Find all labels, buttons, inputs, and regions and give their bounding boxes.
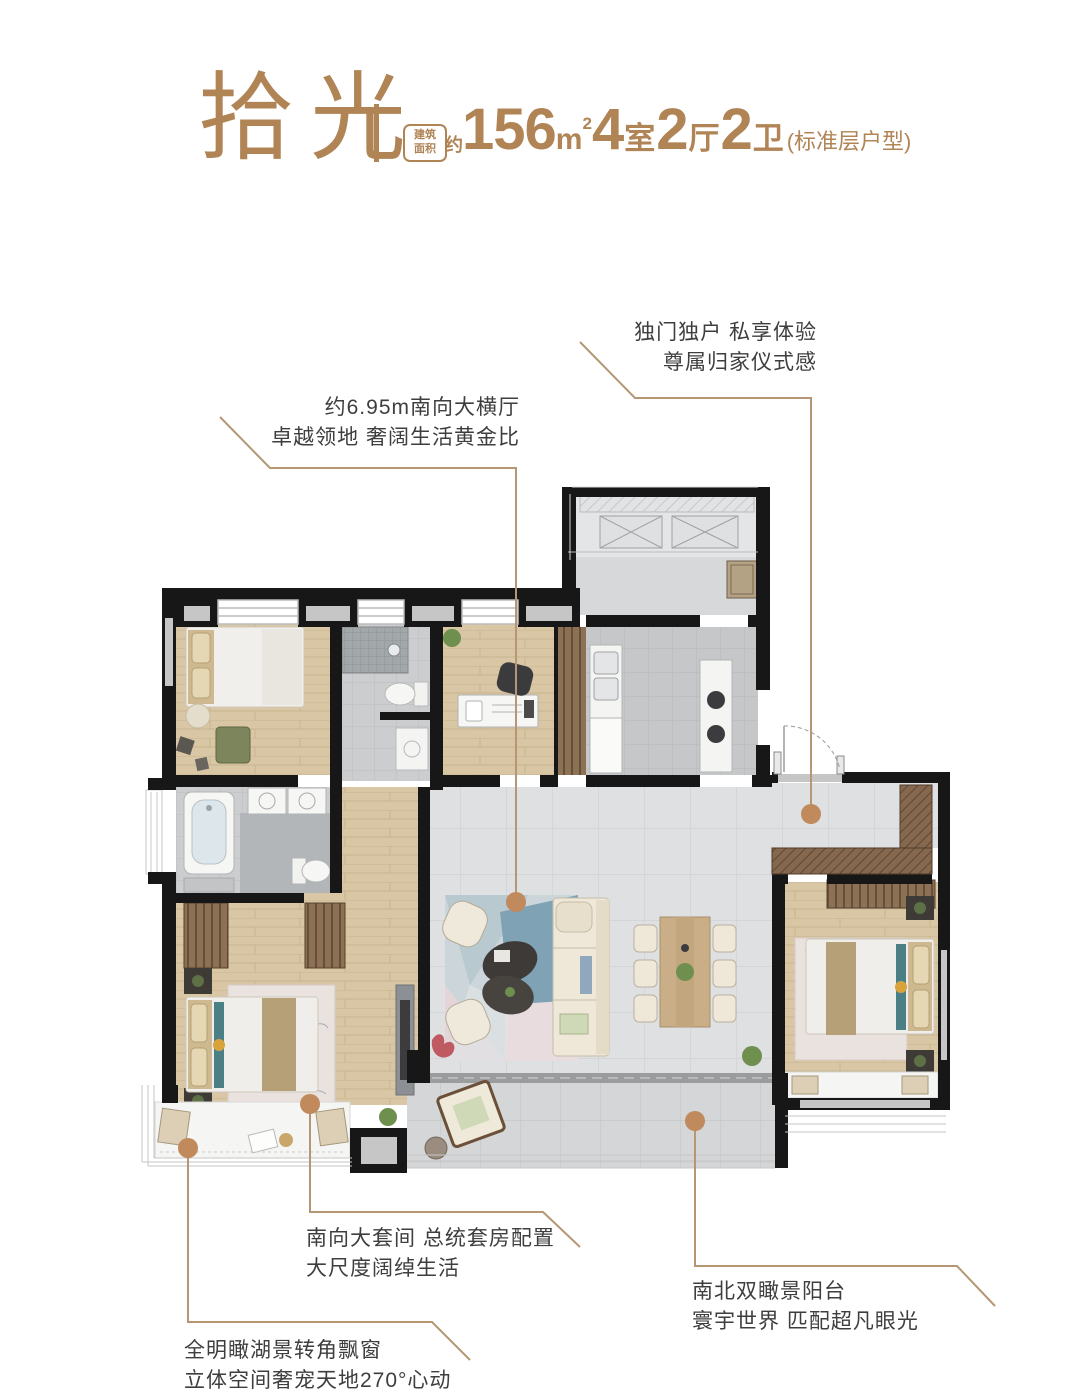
dot-entry	[801, 804, 821, 824]
stove-counter	[700, 660, 732, 772]
floorplan-page: { "colors":{"accent":"#b08455","line":"#…	[0, 0, 1068, 1400]
pantry-cabinet	[558, 627, 586, 775]
dot-bay-window	[178, 1138, 198, 1158]
burner	[707, 725, 725, 743]
toilet-tank	[414, 682, 428, 706]
bench	[216, 727, 250, 763]
vanity-sink	[248, 788, 286, 814]
callout-master-suite: 南向大套间 总统套房配置 大尺度阔绰生活	[306, 1224, 555, 1284]
bedroom-count: 4	[592, 96, 623, 163]
dot-living	[506, 892, 526, 912]
area-number: 156	[462, 96, 556, 163]
dot-master-suite	[300, 1094, 320, 1114]
callout-balcony: 南北双瞰景阳台 寰宇世界 匹配超凡眼光	[692, 1277, 919, 1337]
unit-spec: 156m24室2厅2卫(标准层户型)	[462, 96, 911, 163]
doormat	[727, 561, 757, 598]
floor-type-note: (标准层户型)	[787, 124, 912, 156]
bath-shelf	[184, 878, 234, 892]
plant	[379, 1108, 397, 1126]
callout-entry: 独门独户 私享体验 尊属归家仪式感	[634, 318, 817, 378]
wardrobe	[184, 903, 228, 968]
pillow	[316, 1108, 348, 1146]
bed-runner	[826, 942, 856, 1035]
suite-hallway-floor	[342, 787, 418, 901]
plant	[742, 1046, 762, 1066]
bathroom-count: 2	[720, 96, 751, 163]
burner	[707, 691, 725, 709]
bed-runner	[262, 998, 296, 1091]
round-rug	[186, 704, 210, 728]
page-title: 拾光	[198, 66, 422, 172]
sofa-pillow	[580, 956, 592, 994]
side-table	[425, 1137, 447, 1159]
livingroom-count: 2	[656, 96, 687, 163]
wash-basin	[396, 728, 428, 770]
floor-plan	[0, 0, 1068, 1400]
approx-label: 约	[445, 131, 463, 157]
plant	[443, 629, 461, 647]
title-divider	[374, 104, 379, 162]
pillow	[792, 1076, 818, 1094]
toilet	[385, 683, 415, 705]
entry-door	[774, 726, 844, 774]
pillow	[902, 1076, 928, 1094]
toilet	[302, 860, 330, 882]
fridge	[590, 718, 622, 773]
tub-bay-window	[146, 790, 162, 874]
centerpiece	[676, 963, 694, 981]
callout-bay-window: 全明瞰湖景转角飘窗 立体空间奢宠天地270°心动	[184, 1336, 451, 1396]
vanity-sink	[288, 788, 326, 814]
callout-living: 约6.95m南向大横厅 卓越领地 奢阔生活黄金比	[271, 393, 520, 453]
dot-balcony	[685, 1111, 705, 1131]
wardrobe	[305, 903, 345, 968]
building-area-badge: 建筑 面积	[403, 124, 447, 162]
